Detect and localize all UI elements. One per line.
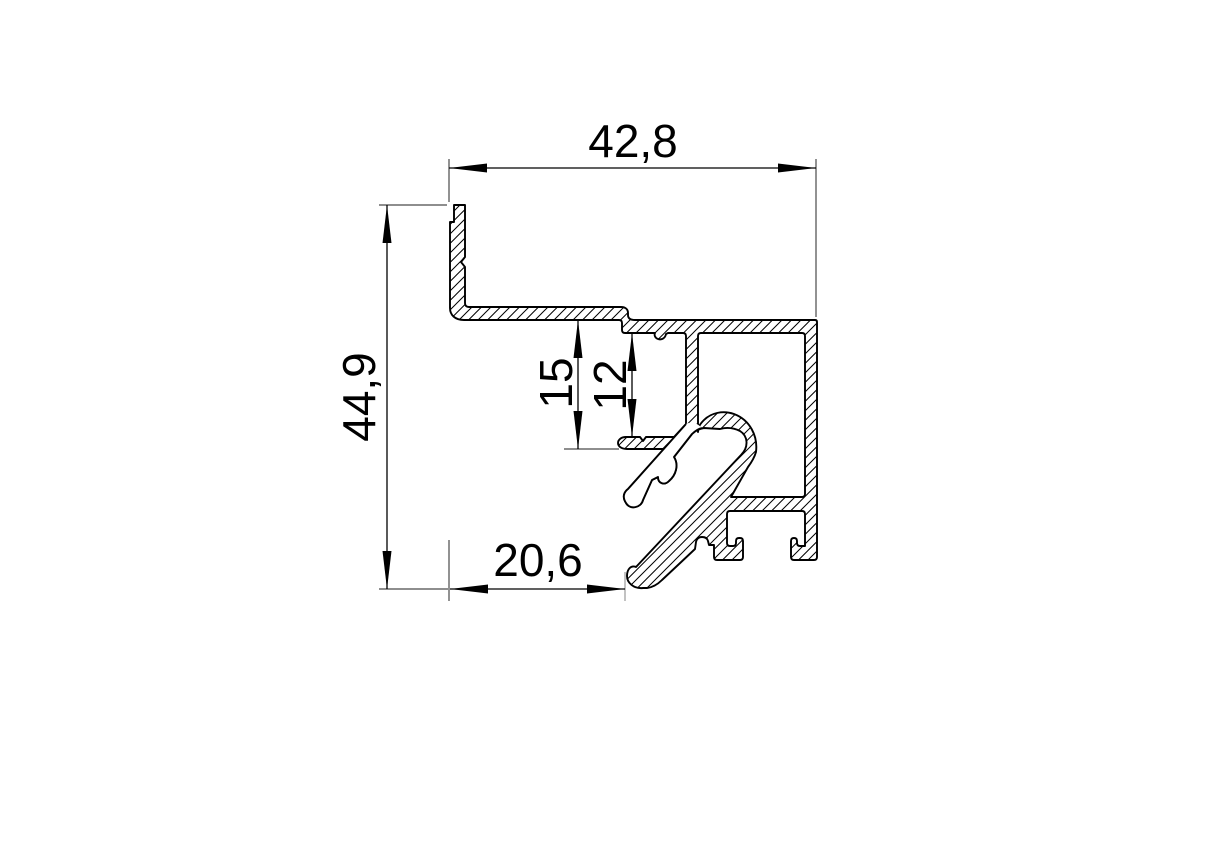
- arrow-right-icon: [587, 585, 625, 594]
- arrow-left-icon: [449, 164, 487, 173]
- arrow-left-icon: [450, 585, 488, 594]
- arrow-down-icon: [574, 411, 583, 449]
- dimension-width-top: 42,8: [449, 115, 816, 317]
- profile-drawing: 42,8 44,9 15 12 20,6: [0, 0, 1221, 846]
- arrow-up-icon: [574, 320, 583, 358]
- arrow-right-icon: [778, 164, 816, 173]
- dimension-label: 20,6: [493, 534, 583, 586]
- dimension-label: 44,9: [333, 352, 385, 442]
- dimension-label: 12: [584, 359, 636, 410]
- dimension-groove-depth-inner: 12: [584, 333, 637, 437]
- dimension-label: 42,8: [588, 115, 678, 167]
- dimension-height-left: 44,9: [333, 205, 448, 589]
- arrow-up-icon: [383, 205, 392, 243]
- dimension-width-bottom: 20,6: [449, 534, 625, 601]
- drawing-canvas: 42,8 44,9 15 12 20,6: [0, 0, 1221, 846]
- arrow-down-icon: [383, 551, 392, 589]
- dimension-label: 15: [530, 357, 582, 408]
